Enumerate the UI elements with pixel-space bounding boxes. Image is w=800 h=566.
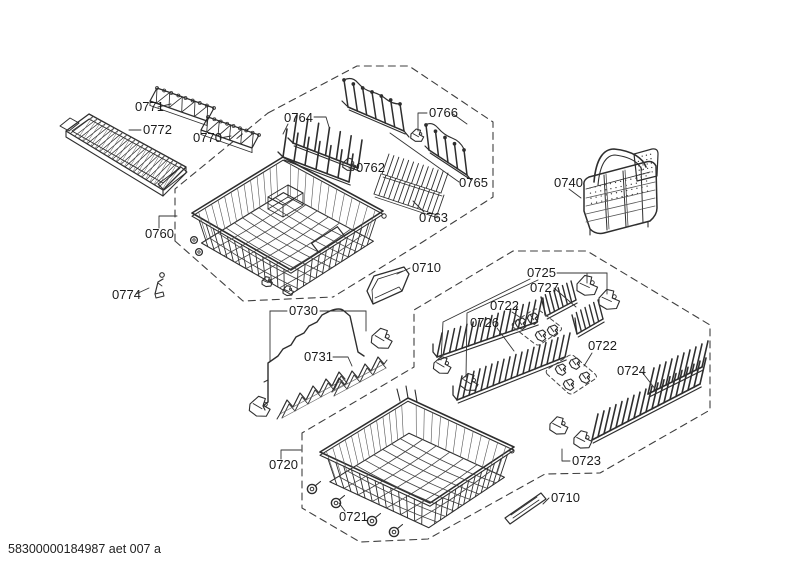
callout-0710-upper: 0710 (412, 260, 441, 275)
part-0724-tine-rows (592, 341, 708, 443)
callout-0766: 0766 (429, 105, 458, 120)
callout-0730: 0730 (289, 303, 318, 318)
exploded-parts-diagram: 0771 0772 0770 0764 0766 0762 0765 0763 … (0, 0, 800, 566)
callout-0772: 0772 (143, 122, 172, 137)
callout-0765: 0765 (459, 175, 488, 190)
callout-0771: 0771 (135, 99, 164, 114)
part-0725-hinge-clips (432, 273, 621, 392)
callout-0721: 0721 (339, 509, 368, 524)
part-0766-folding-rack (409, 124, 471, 180)
callout-0722-a: 0722 (490, 298, 519, 313)
callout-0724: 0724 (617, 363, 646, 378)
callout-0740: 0740 (554, 175, 583, 190)
callout-0725: 0725 (527, 265, 556, 280)
part-0763-fine-tine-combs (374, 154, 448, 218)
callout-0720: 0720 (269, 457, 298, 472)
callout-0726: 0726 (470, 315, 499, 330)
part-0723-clips (547, 415, 593, 451)
part-0720-lower-basket (320, 386, 514, 528)
part-0774-clip (155, 273, 164, 298)
callout-leader-lines (129, 104, 656, 511)
part-0731-folding-plate-rack (277, 357, 387, 419)
callout-0723: 0723 (572, 453, 601, 468)
document-code: 58300000184987 aet 007 a (8, 542, 161, 556)
callout-0710-lower: 0710 (551, 490, 580, 505)
callout-0770: 0770 (193, 130, 222, 145)
part-0760-upper-basket (191, 157, 387, 297)
part-0740-cutlery-basket (584, 149, 658, 235)
callout-0731: 0731 (304, 349, 333, 364)
callout-0763: 0763 (419, 210, 448, 225)
callout-0764: 0764 (284, 110, 313, 125)
callout-0762: 0762 (356, 160, 385, 175)
part-0765-folding-rack (342, 79, 409, 137)
callout-0727: 0727 (530, 280, 559, 295)
callout-0760: 0760 (145, 226, 174, 241)
callout-0722-b: 0722 (588, 338, 617, 353)
diagram-stage: 0771 0772 0770 0764 0766 0762 0765 0763 … (0, 0, 800, 566)
part-0710-handle-lower (505, 493, 546, 524)
callout-0774: 0774 (112, 287, 141, 302)
assembly-boundary-dashed-lines (175, 66, 710, 542)
part-0722-clip-set-a (512, 309, 561, 345)
